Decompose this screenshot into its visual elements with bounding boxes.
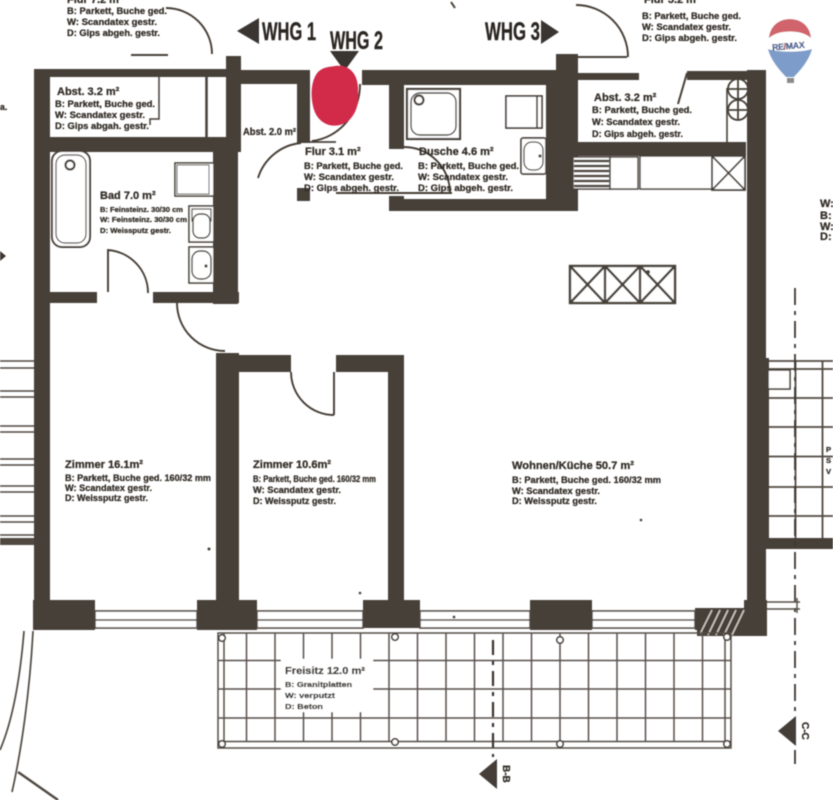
svg-text:Zimmer 10.6m²: Zimmer 10.6m² [253, 459, 331, 471]
svg-text:W:: W: [820, 198, 833, 210]
svg-text:B-B: B-B [500, 765, 511, 783]
svg-text:V: V [826, 467, 832, 476]
svg-text:W: Scandatex gestr.: W: Scandatex gestr. [592, 117, 680, 127]
svg-text:WHG 2: WHG 2 [330, 27, 383, 55]
svg-text:B: Parkett, Buche ged. 160/32: B: Parkett, Buche ged. 160/32 mm [253, 474, 376, 484]
svg-text:Freisitz 12.0 m²: Freisitz 12.0 m² [285, 666, 366, 677]
svg-text:W: Feinsteinz. 30/30 cm: W: Feinsteinz. 30/30 cm [100, 215, 187, 224]
svg-text:D: Gips abgah. gestr.: D: Gips abgah. gestr. [55, 121, 149, 131]
svg-text:Abst. 2.0 m²: Abst. 2.0 m² [243, 127, 297, 138]
svg-text:Flur 5.2 m²: Flur 5.2 m² [644, 0, 700, 6]
svg-text:W: Scandatex gestr.: W: Scandatex gestr. [67, 17, 157, 27]
svg-text:D: Weissputz gestr.: D: Weissputz gestr. [512, 496, 597, 506]
svg-text:W: Scandatex gestr.: W: Scandatex gestr. [253, 485, 341, 495]
svg-text:D: Gips abgeh. gestr.: D: Gips abgeh. gestr. [418, 183, 513, 193]
svg-text:D: Weissputz gestr.: D: Weissputz gestr. [100, 226, 171, 235]
svg-text:B: Parkett, Buche ged. 160/32: B: Parkett, Buche ged. 160/32 mm [512, 475, 661, 485]
svg-text:B: Parkett, Buche ged.: B: Parkett, Buche ged. [304, 161, 403, 171]
svg-text:B: Parkett, Buche ged.: B: Parkett, Buche ged. [67, 6, 167, 16]
svg-text:D: Weissputz gestr.: D: Weissputz gestr. [253, 496, 336, 506]
svg-text:B: Granitplatten: B: Granitplatten [285, 680, 352, 689]
svg-text:B: Parkett, Buche ged.: B: Parkett, Buche ged. [592, 105, 692, 115]
svg-text:S: S [826, 456, 831, 465]
svg-text:B: Parkett, Buche ged.: B: Parkett, Buche ged. [418, 161, 519, 171]
svg-text:Abst. 3.2 m²: Abst. 3.2 m² [57, 86, 120, 98]
svg-text:D: Beton: D: Beton [285, 702, 323, 711]
svg-text:W: Scandatex gestr.: W: Scandatex gestr. [55, 110, 145, 120]
svg-text:P: P [826, 445, 831, 454]
svg-text:Flur 3.1 m²: Flur 3.1 m² [305, 146, 361, 158]
svg-text:Abst. 3.2 m²: Abst. 3.2 m² [594, 92, 657, 104]
svg-text:B: Parkett, Buche ged.: B: Parkett, Buche ged. [642, 11, 741, 21]
svg-text:B: Parkett, Buche ged. 160/32: B: Parkett, Buche ged. 160/32 mm [65, 473, 211, 483]
svg-text:Bad 7.0 m²: Bad 7.0 m² [100, 190, 156, 202]
svg-text:B: Feinsteinz. 30/30 cm: B: Feinsteinz. 30/30 cm [100, 205, 183, 214]
svg-text:D: Gips abgeh. gestr.: D: Gips abgeh. gestr. [304, 183, 399, 193]
svg-text:D: Gips abgeh. gestr.: D: Gips abgeh. gestr. [67, 28, 160, 38]
svg-text:W: Scandatex gestr.: W: Scandatex gestr. [642, 22, 731, 32]
svg-text:W: verputzt: W: verputzt [285, 691, 336, 700]
svg-text:C-C: C-C [799, 722, 810, 740]
svg-text:Zimmer 16.1m²: Zimmer 16.1m² [65, 459, 143, 471]
svg-text:D: Weissputz gestr.: D: Weissputz gestr. [65, 493, 148, 503]
svg-text:a.: a. [0, 102, 7, 112]
svg-text:W: Scandatex gestr.: W: Scandatex gestr. [512, 486, 600, 496]
svg-text:D: Gips abgeh. gestr.: D: Gips abgeh. gestr. [642, 33, 737, 43]
svg-text:WHG 3: WHG 3 [485, 18, 540, 46]
svg-text:B: Parkett, Buche ged.: B: Parkett, Buche ged. [55, 99, 155, 109]
svg-text:W: Scandatex gestr.: W: Scandatex gestr. [65, 483, 152, 493]
svg-text:Dusche 4.6 m²: Dusche 4.6 m² [419, 146, 494, 158]
svg-text:WHG 1: WHG 1 [262, 18, 316, 46]
svg-text:D:: D: [820, 231, 832, 243]
svg-text:W: Scandatex gestr.: W: Scandatex gestr. [418, 172, 508, 182]
svg-text:W: Scandatex gestr.: W: Scandatex gestr. [304, 172, 394, 182]
svg-text:Wohnen/Küche 50.7 m²: Wohnen/Küche 50.7 m² [512, 460, 634, 472]
svg-text:D: Gips abgeh. gestr.: D: Gips abgeh. gestr. [592, 129, 683, 139]
